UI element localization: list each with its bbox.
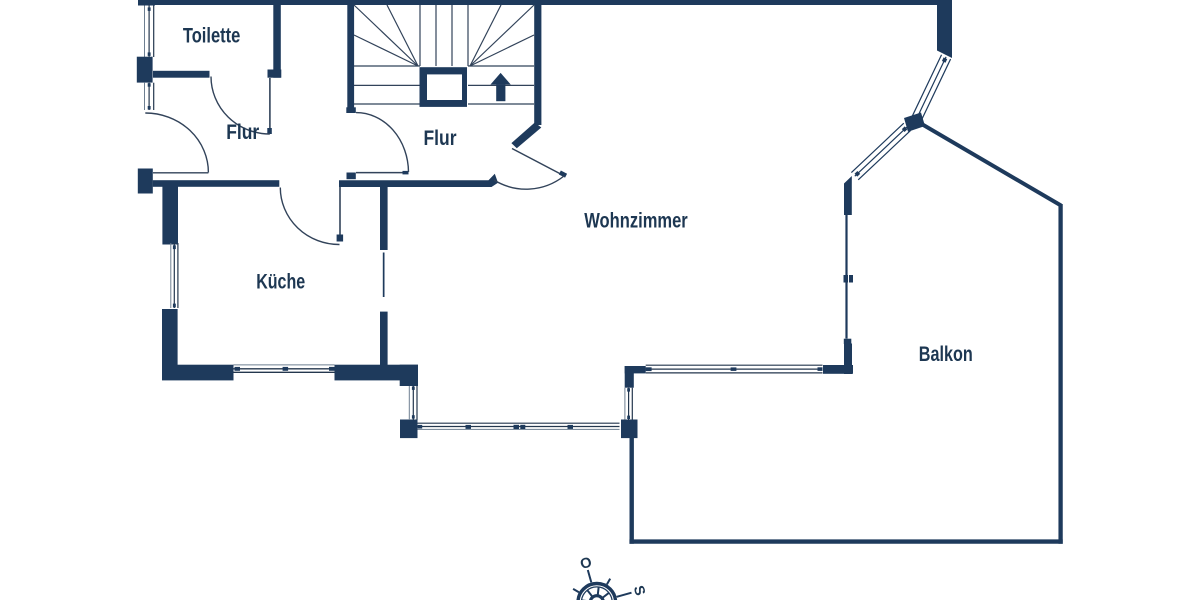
- svg-text:Balkon: Balkon: [919, 342, 973, 366]
- svg-text:Küche: Küche: [256, 270, 305, 294]
- svg-text:Wohnzimmer: Wohnzimmer: [584, 208, 688, 232]
- svg-text:Flur: Flur: [424, 126, 457, 150]
- svg-text:Flur: Flur: [226, 120, 259, 144]
- svg-text:Toilette: Toilette: [183, 23, 241, 47]
